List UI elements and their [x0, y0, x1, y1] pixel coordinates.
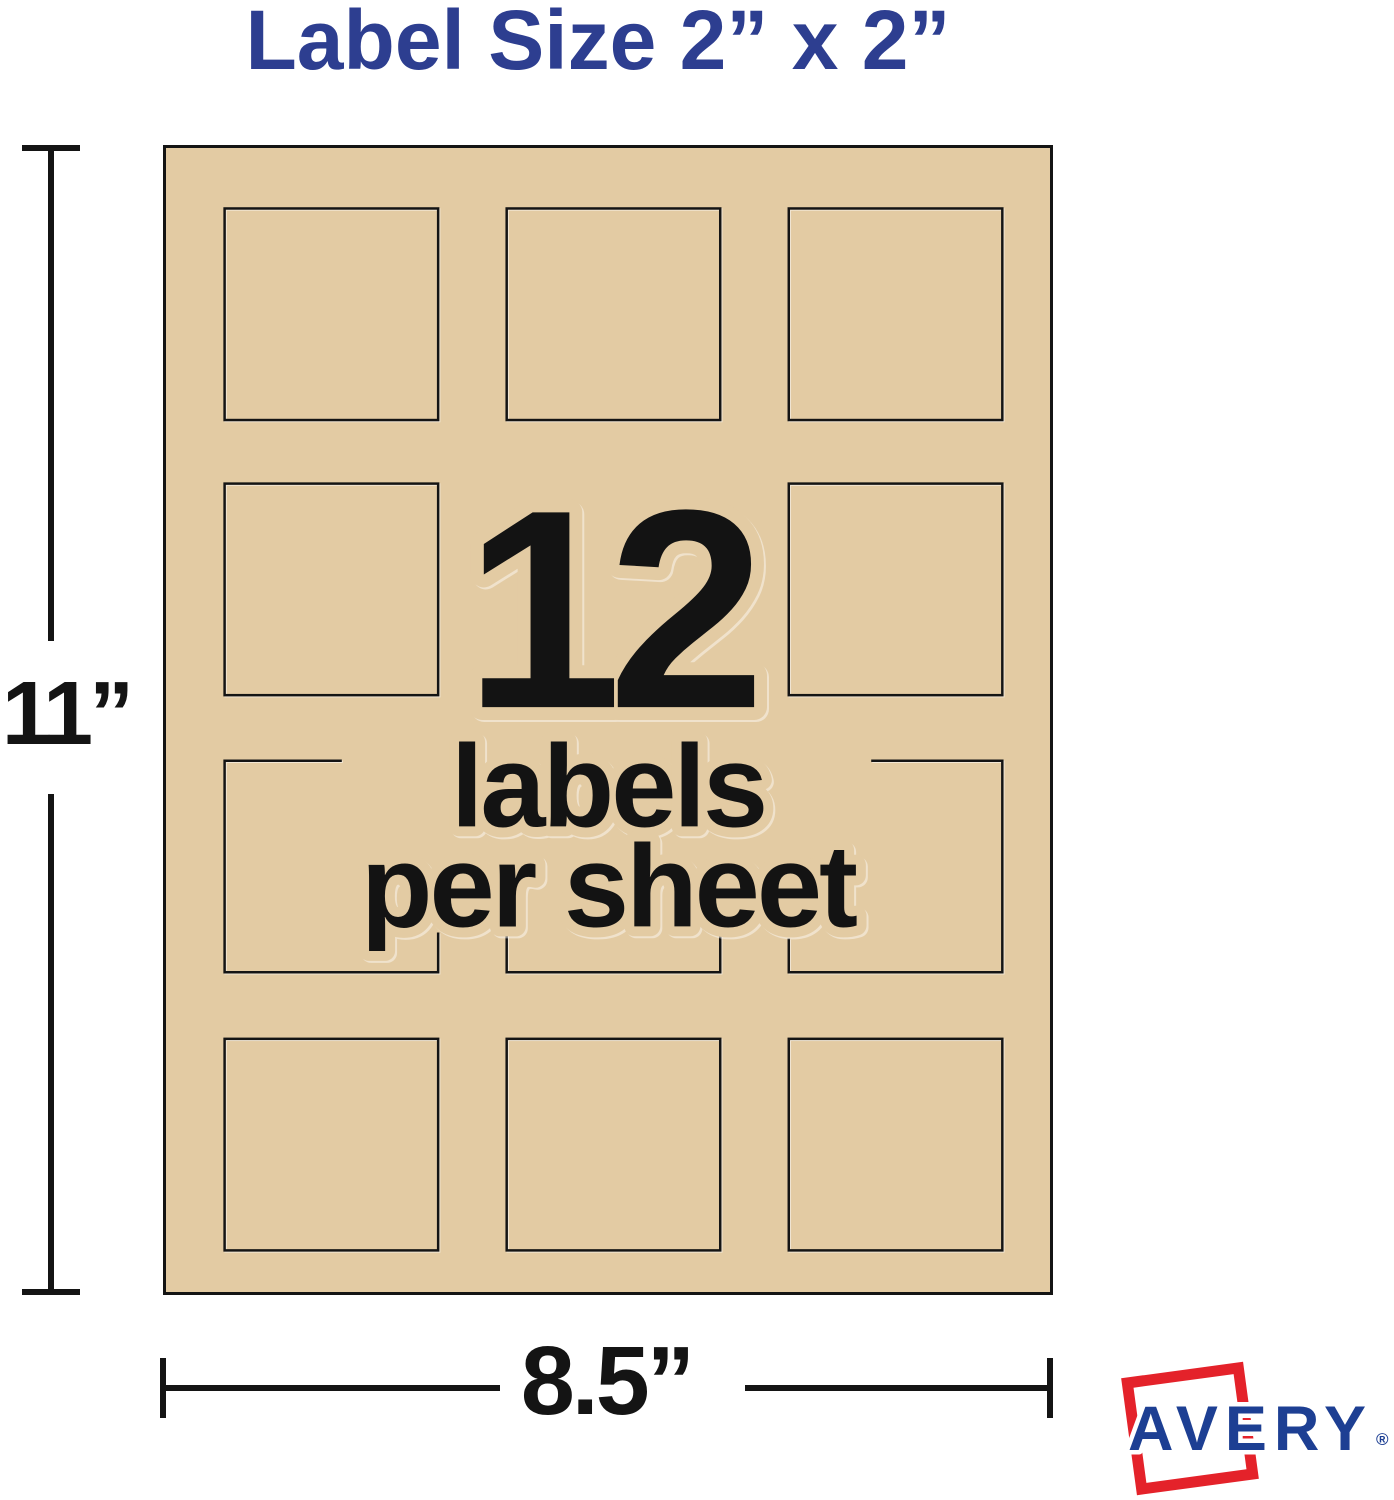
product-diagram: Label Size 2” x 2” 12 labels per sheet 1… — [0, 0, 1394, 1500]
registered-trademark-icon: ® — [1376, 1430, 1389, 1449]
width-dimension: 8.5” — [160, 1358, 1053, 1418]
dimension-line-lower — [48, 794, 54, 1289]
label-cell — [789, 208, 1003, 420]
sheet-caption: 12 labels per sheet — [361, 451, 857, 952]
dimension-endcap-bottom — [22, 1289, 80, 1295]
dimension-line-right — [745, 1385, 1047, 1391]
label-cell — [225, 208, 439, 420]
caption-per-sheet: per sheet — [361, 821, 857, 952]
width-dimension-label: 8.5” — [521, 1332, 692, 1429]
avery-logo-art: AVERY ® — [1095, 1338, 1394, 1500]
label-cell — [789, 1039, 1003, 1251]
label-cell — [507, 208, 721, 420]
height-dimension: 11” — [22, 145, 80, 1295]
page-title: Label Size 2” x 2” — [143, 0, 1053, 89]
label-cell — [789, 484, 1003, 696]
label-cell — [225, 484, 439, 696]
dimension-endcap-right — [1047, 1358, 1053, 1418]
label-sheet: 12 labels per sheet — [163, 145, 1053, 1295]
dimension-line-upper — [48, 151, 54, 641]
label-cell — [507, 1039, 721, 1251]
label-cell — [225, 1039, 439, 1251]
avery-logo: AVERY ® — [1095, 1338, 1394, 1500]
label-sheet-art: 12 labels per sheet — [166, 148, 1050, 1292]
dimension-line-left — [166, 1385, 500, 1391]
height-dimension-label: 11” — [0, 669, 134, 759]
logo-brand-text: AVERY — [1128, 1394, 1373, 1464]
